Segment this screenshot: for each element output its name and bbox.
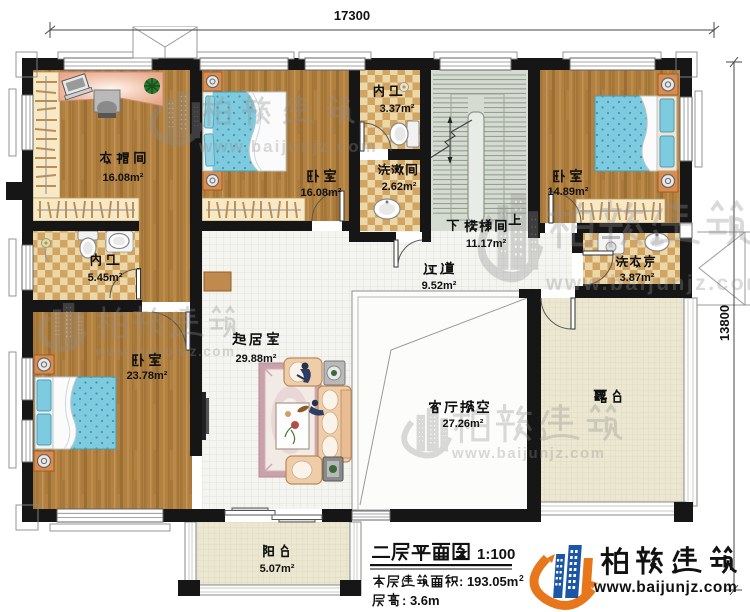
svg-text:3.87m²: 3.87m²: [620, 272, 655, 284]
svg-text:17300: 17300: [334, 8, 370, 23]
svg-text:1:100: 1:100: [477, 546, 515, 563]
svg-text:27.26m²: 27.26m²: [443, 418, 484, 430]
svg-text:11.17m²: 11.17m²: [466, 238, 507, 250]
svg-text:23.78m²: 23.78m²: [127, 370, 168, 382]
svg-text:2: 2: [519, 573, 524, 583]
svg-text:2.62m²: 2.62m²: [382, 181, 417, 193]
svg-text:5.45m²: 5.45m²: [88, 272, 123, 284]
svg-text:www.baijunjz.com: www.baijunjz.com: [94, 344, 236, 359]
svg-text:14.89m²: 14.89m²: [548, 186, 589, 198]
svg-text:16.08m²: 16.08m²: [103, 172, 144, 184]
svg-text:13800: 13800: [717, 305, 732, 341]
svg-text:29.88m²: 29.88m²: [236, 353, 277, 365]
svg-text:3.37m²: 3.37m²: [380, 103, 415, 115]
svg-text:www.baijunjz.com: www.baijunjz.com: [451, 445, 605, 462]
svg-text:: 3.6m: : 3.6m: [402, 593, 440, 608]
svg-text:: 193.05m: : 193.05m: [459, 574, 518, 589]
svg-text:www.baijunjz.com: www.baijunjz.com: [593, 579, 737, 596]
svg-text:www.baijunjz.com: www.baijunjz.com: [198, 137, 378, 156]
svg-text:9.52m²: 9.52m²: [422, 280, 457, 292]
svg-text:5.07m²: 5.07m²: [260, 563, 295, 575]
svg-text:16.08m²: 16.08m²: [301, 187, 342, 199]
